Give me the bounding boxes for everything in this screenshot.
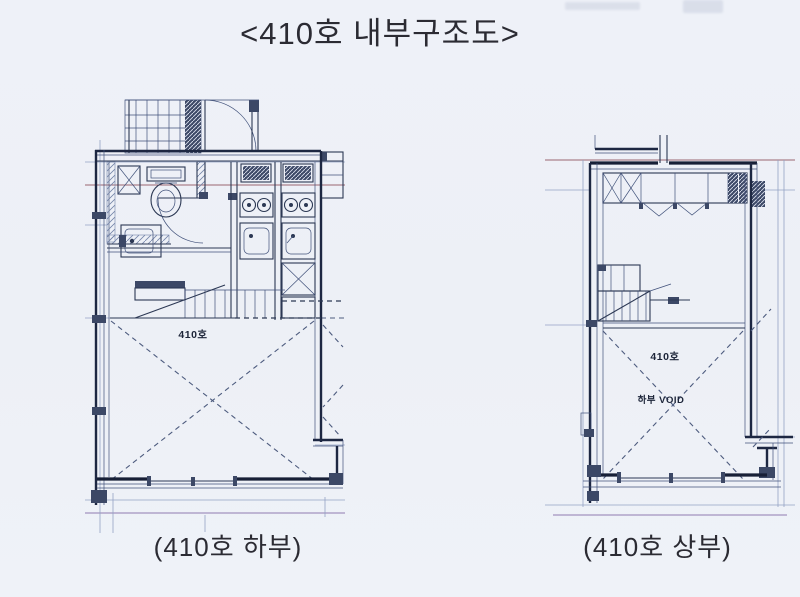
bathroom-door-arc <box>158 192 237 243</box>
floor-plan-upper-drawing: 410호 하부 VOID <box>545 135 795 520</box>
kitchen-sink-icon <box>240 223 315 259</box>
top-wall <box>590 163 757 169</box>
right-wall <box>745 163 793 480</box>
room-label-lower: 410호 <box>178 328 207 341</box>
left-wall <box>581 163 603 503</box>
caption-lower: (410호 하부) <box>85 527 371 564</box>
main-room: 410호 <box>111 320 343 480</box>
stairs <box>598 265 690 321</box>
room-label-upper: 410호 <box>650 350 679 363</box>
floor-plan-upper: 410호 하부 VOID <box>545 135 795 525</box>
page-title: <410호 내부구조도> <box>0 8 760 53</box>
document-page: <410호 내부구조도> <box>0 0 800 597</box>
bottom-wall-window <box>97 440 343 488</box>
toilet-icon <box>147 167 185 217</box>
floor-plan-lower-drawing: 410호 <box>85 85 345 535</box>
kitchen <box>240 151 345 442</box>
stove-icon <box>240 193 315 217</box>
balcony-grid <box>125 100 201 153</box>
closet-row <box>603 173 765 216</box>
hanger-icons <box>639 203 709 216</box>
void-label: 하부 VOID <box>638 394 685 406</box>
shaft-box <box>118 166 140 194</box>
floor-plan-lower: 410호 <box>85 85 345 540</box>
bathroom <box>107 162 237 257</box>
room-void-x <box>111 321 343 480</box>
stairs <box>110 281 321 318</box>
void-room: 410호 하부 VOID <box>603 323 745 479</box>
caption-upper: (410호 상부) <box>545 527 770 564</box>
